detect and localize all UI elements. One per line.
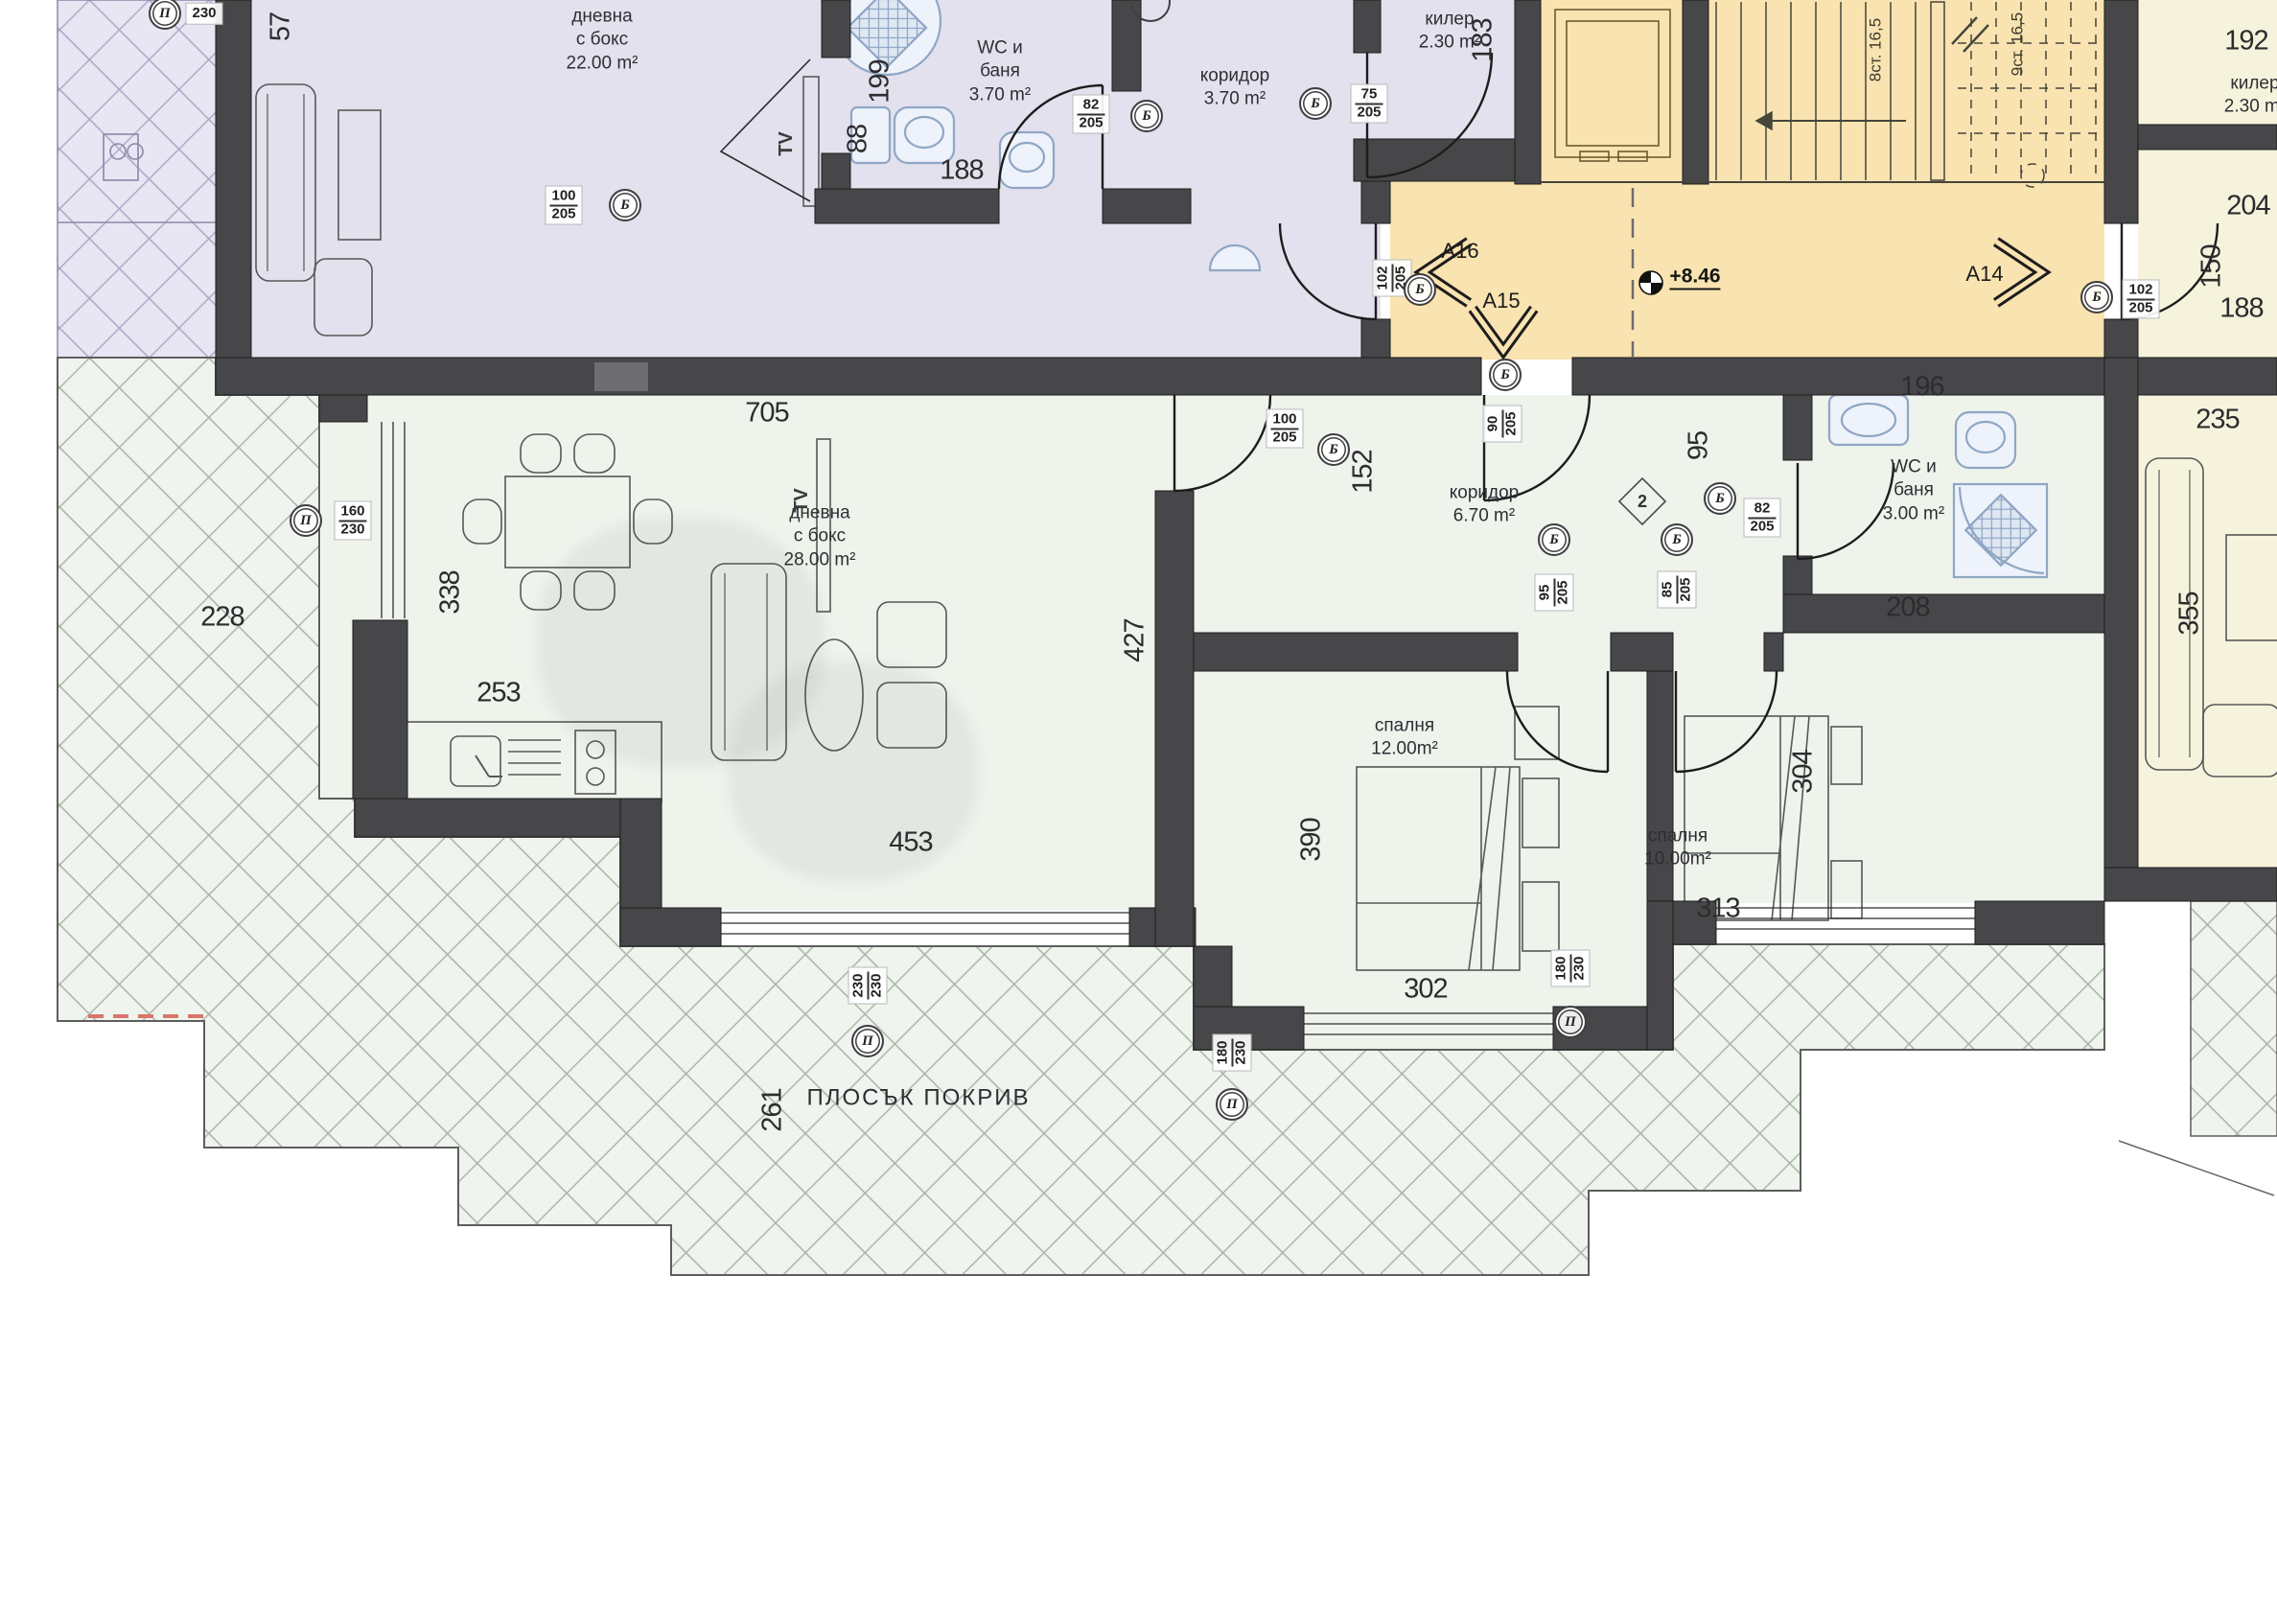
- door-type-badge: Б: [1489, 359, 1522, 391]
- window-size-label: 160230: [334, 501, 371, 541]
- room-label-flat-roof: ПЛОСЪК ПОКРИВ: [807, 1084, 1031, 1114]
- dimension-label: 196: [1900, 374, 1943, 402]
- door-type-badge: Б: [1317, 433, 1350, 466]
- window-type-badge: П: [290, 504, 322, 537]
- dimension-label: 338: [437, 570, 465, 614]
- stair-flight-label-b: 9ст. 16,5: [2010, 12, 2026, 76]
- dimension-label: 235: [2196, 406, 2239, 434]
- dimension-label: 188: [940, 157, 983, 185]
- dimension-label: 261: [759, 1088, 787, 1131]
- door-type-badge: Б: [1661, 523, 1693, 556]
- window-size-label: 230230: [848, 966, 888, 1004]
- door-type-badge: Б: [1704, 482, 1736, 515]
- room-label-wc-main: WC ибаня3.00 m²: [1883, 456, 1944, 526]
- dimension-label: 199: [867, 59, 895, 103]
- window-type-badge: П: [149, 0, 181, 30]
- entrance-arrow-label-a14: A14: [1965, 264, 2003, 285]
- window-size-label: 180230: [1551, 949, 1591, 986]
- window-type-badge: П: [1554, 1006, 1587, 1038]
- dimension-label: 57: [267, 12, 295, 41]
- room-label-corridor-main: коридор6.70 m²: [1450, 482, 1520, 529]
- dimension-label: 152: [1350, 450, 1378, 493]
- door-size-label: 102205: [2122, 280, 2159, 319]
- window-type-badge: П: [1216, 1088, 1248, 1121]
- dimension-label: 302: [1404, 976, 1447, 1004]
- tv-label: TV: [792, 488, 811, 513]
- dimension-label: 253: [476, 680, 520, 708]
- dimension-label: 88: [845, 125, 872, 153]
- entrance-arrow-label-a15: A15: [1482, 290, 1520, 312]
- window-type-badge: П: [851, 1025, 884, 1057]
- watermark: [729, 661, 978, 882]
- door-size-label: 100205: [545, 186, 582, 225]
- entrance-arrow-label-a16: A16: [1441, 241, 1478, 262]
- door-size-label: 100205: [1266, 409, 1303, 449]
- door-type-badge: Б: [2080, 281, 2113, 313]
- window-size-label: 180230: [1213, 1033, 1252, 1071]
- dimension-label: 150: [2198, 244, 2226, 288]
- door-type-badge: Б: [609, 189, 641, 221]
- door-size-label: 82205: [1743, 499, 1780, 538]
- dimension-label: 192: [2224, 28, 2267, 56]
- door-size-label: 82205: [1072, 95, 1109, 134]
- door-size-label: 90205: [1483, 405, 1522, 442]
- dimension-label: 95: [1685, 431, 1713, 460]
- room-label-living-top: дневнас бокс22.00 m²: [567, 6, 639, 76]
- tv-label: TV: [777, 131, 796, 156]
- dimension-label: 188: [2219, 295, 2263, 323]
- door-type-badge: Б: [1404, 273, 1436, 306]
- door-size-label: 75205: [1350, 84, 1387, 124]
- room-label-bedroom-1: спалня12.00m²: [1371, 715, 1438, 762]
- floorplan-page: дневнас бокс22.00 m²WC ибаня3.70 m²корид…: [0, 0, 2277, 1624]
- dimension-label: 313: [1696, 895, 1739, 923]
- door-type-badge: Б: [1130, 100, 1163, 132]
- door-size-label: 85205: [1658, 570, 1697, 608]
- door-type-badge: Б: [1299, 87, 1332, 120]
- dimension-label: 183: [1470, 18, 1498, 61]
- room-label-bedroom-2: спалня10.00m²: [1644, 825, 1711, 872]
- dimension-label: 208: [1886, 594, 1929, 622]
- dimension-label: 390: [1298, 818, 1326, 861]
- dimension-label: 705: [745, 400, 788, 428]
- shaft-number: 2: [1638, 493, 1647, 510]
- door-type-badge: Б: [1538, 523, 1570, 556]
- level-mark: +8.46: [1669, 267, 1720, 290]
- stair-flight-label-a: 8ст. 16,5: [1868, 18, 1884, 81]
- dimension-label: 355: [2176, 592, 2204, 635]
- labels-layer: дневнас бокс22.00 m²WC ибаня3.70 m²корид…: [0, 0, 2277, 1624]
- door-size-label: 95205: [1535, 573, 1574, 611]
- dimension-label: 228: [200, 604, 244, 632]
- dimension-label: 304: [1790, 750, 1818, 793]
- dimension-label: 204: [2226, 193, 2269, 220]
- dimension-label: 427: [1122, 618, 1150, 661]
- room-label-wc-top: WC ибаня3.70 m²: [969, 37, 1031, 107]
- room-label-kiler-right: килер2.30 m²: [2224, 73, 2277, 120]
- window-size-label: 230: [185, 3, 222, 25]
- room-label-corridor-top: коридор3.70 m²: [1200, 65, 1270, 112]
